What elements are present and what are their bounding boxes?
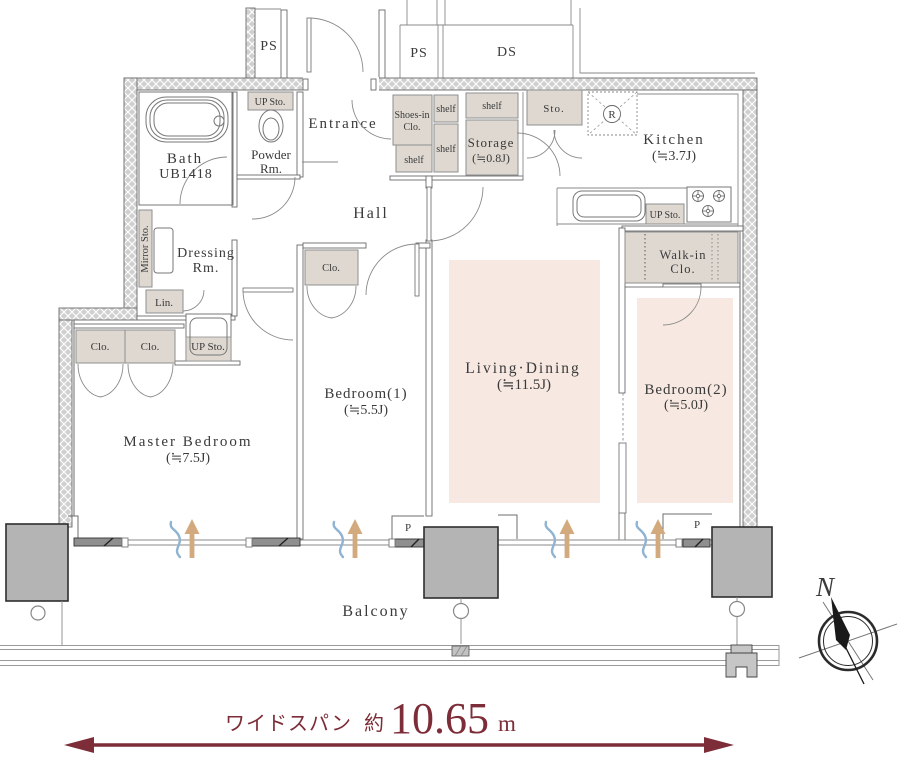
sto-door-arc-right (554, 130, 582, 158)
dimension-approx: 約 (364, 712, 384, 735)
entrance-hall: Entrance Hall Shoes-in Clo. shelf shelf … (308, 90, 582, 241)
entrance-alcove-left-wall (281, 10, 287, 78)
service-shafts: PS PS DS (255, 0, 755, 78)
bedroom1-door-arc (366, 244, 417, 295)
toilet-icon (259, 110, 283, 142)
bedroom1: Clo. Bedroom(1) (≒5.5J) (305, 244, 419, 418)
powder-label-2: Rm. (260, 161, 282, 176)
master-closet-2-label: Clo. (141, 341, 160, 353)
railing-foot (726, 653, 757, 677)
pillar-right-p-label: P (694, 519, 700, 531)
compass: N (799, 572, 897, 684)
balcony-label: Balcony (342, 603, 409, 620)
dressing-label-2: Rm. (193, 261, 220, 276)
front-door-swing-arc (309, 18, 363, 72)
wall-top-stub (246, 8, 255, 78)
entrance-opening (303, 77, 379, 91)
kitchen-label: Kitchen (643, 132, 704, 148)
floor-plan-page: PS PS DS (0, 0, 900, 771)
shelf-c-label: shelf (404, 155, 424, 166)
compass-needle (831, 597, 850, 650)
bath-code-label: UB1418 (159, 167, 212, 182)
pillar-right (712, 527, 772, 597)
dimension: ワイドスパン 約 10.65 m (64, 694, 734, 753)
pillar-left (6, 524, 68, 601)
shoes-label-1: Shoes-in (395, 110, 430, 121)
linen-label: Lin. (155, 297, 173, 309)
dimension-label: ワイドスパン (225, 713, 352, 735)
entrance-alcove-right-wall (379, 10, 385, 78)
linen-door-arc (183, 290, 204, 311)
sto-door-arc-left (527, 130, 555, 158)
shelf-a-label: shelf (436, 104, 456, 115)
pillar-left-p-label: P (405, 522, 411, 534)
bedroom2-size-label: (≒5.0J) (664, 398, 708, 413)
master-label: Master Bedroom (123, 434, 252, 450)
corridor-door-arc (243, 290, 293, 340)
storage-size-label: (≒0.8J) (472, 151, 510, 165)
storage-label: Storage (468, 135, 515, 150)
balcony-drain-right (730, 602, 745, 617)
balcony-drain-left (31, 606, 45, 620)
living-size-label: (≒11.5J) (497, 377, 551, 393)
bathroom: Bath UB1418 (139, 92, 233, 205)
ds-label: DS (497, 45, 517, 60)
wall-top (125, 78, 757, 90)
up-sto-powder-label: UP Sto. (255, 97, 286, 108)
mirror-storage-label: Mirror Sto. (140, 225, 151, 272)
walkin-label-2: Clo. (670, 262, 695, 276)
shoes-label-2: Clo. (404, 122, 421, 133)
kitchen: UP Sto. R Kitchen (≒3.7J) (557, 92, 738, 226)
up-sto-kitchen-label: UP Sto. (650, 210, 681, 221)
sliding-door-bedroom2 (619, 443, 626, 513)
bedroom1-closet-label: Clo. (322, 263, 340, 274)
powder-door-arc (252, 177, 295, 219)
vanity-sink (154, 228, 173, 273)
master-bedroom: Master Bedroom (≒7.5J) (123, 434, 252, 466)
dimension-arrow-right (704, 737, 734, 753)
up-sto-corridor-label: UP Sto. (191, 341, 225, 353)
master-closets: Clo. Clo. (76, 330, 175, 397)
bathtub-faucet (214, 116, 224, 126)
pillar-middle (424, 527, 498, 598)
powder-room: UP Sto. Powder Rm. (248, 92, 295, 219)
wall-right (743, 90, 757, 527)
ps-right-label: PS (410, 46, 428, 61)
dimension-arrow-left (64, 737, 94, 753)
master-size-label: (≒7.5J) (166, 451, 210, 466)
entrance-label: Entrance (308, 116, 377, 132)
dimension-value: 10.65 (390, 694, 489, 743)
bedroom1-size-label: (≒5.5J) (344, 403, 388, 418)
bedroom1-label: Bedroom(1) (324, 386, 407, 402)
hall-label: Hall (353, 205, 389, 222)
ps-left-label: PS (260, 39, 278, 54)
kitchen-size-label: (≒3.7J) (652, 149, 696, 164)
front-door-leaf (307, 18, 311, 72)
master-closet-1-label: Clo. (91, 341, 110, 353)
window-wall: P P (68, 514, 712, 558)
shelf-b-label: shelf (436, 144, 456, 155)
wall-left-lower (59, 320, 72, 527)
bedroom2-label: Bedroom(2) (644, 382, 727, 398)
powder-label-1: Powder (251, 147, 291, 162)
bedroom1-door-leaf (415, 244, 419, 296)
floor-plan-drawing: PS PS DS (0, 0, 900, 771)
hall-living-door-leaf (427, 187, 431, 241)
living-label: Living·Dining (465, 360, 581, 377)
bath-label: Bath (167, 151, 203, 167)
shelf-d-label: shelf (482, 101, 502, 112)
walkin-door-leaf (663, 284, 701, 287)
balcony-drain-middle (454, 604, 469, 619)
sto-label: Sto. (543, 103, 564, 115)
refrigerator-label: R (608, 109, 616, 121)
wall-left-step (59, 308, 137, 320)
compass-north-label: N (815, 572, 836, 602)
hall-living-door-arc (429, 187, 483, 241)
dimension-unit: m (498, 711, 516, 736)
wall-left-upper (124, 78, 137, 316)
corridor-door-leaf (243, 288, 293, 292)
dressing-label-1: Dressing (177, 246, 235, 261)
walkin-label-1: Walk-in (660, 248, 707, 262)
